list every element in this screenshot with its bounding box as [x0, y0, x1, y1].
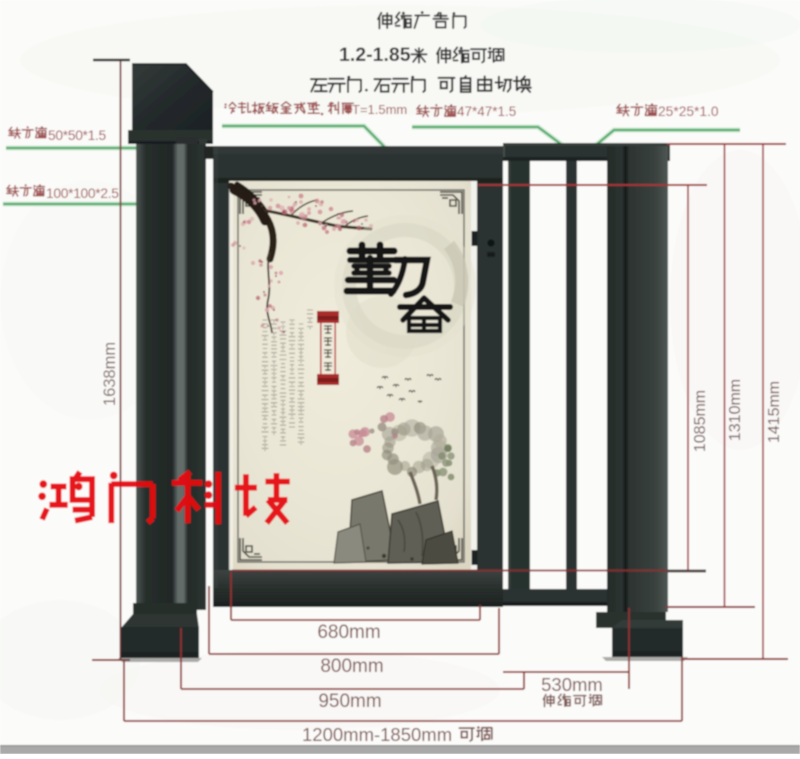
svg-text:1415mm: 1415mm — [766, 381, 783, 443]
svg-text:800mm: 800mm — [320, 656, 383, 677]
svg-text:1.2-1.85: 1.2-1.85 — [339, 44, 411, 66]
svg-text:1200mm-1850mm: 1200mm-1850mm — [302, 724, 452, 745]
svg-text:47*47*1.5: 47*47*1.5 — [457, 104, 516, 119]
svg-text:680mm: 680mm — [317, 622, 380, 643]
svg-text:1310mm: 1310mm — [727, 379, 744, 441]
svg-text:25*25*1.0: 25*25*1.0 — [658, 104, 719, 119]
svg-text:1638mm: 1638mm — [101, 342, 119, 406]
svg-text:530mm: 530mm — [541, 674, 603, 695]
svg-text:50*50*1.5: 50*50*1.5 — [48, 128, 107, 143]
svg-text:100*100*2.5: 100*100*2.5 — [46, 186, 119, 201]
svg-text:T=1.5mm: T=1.5mm — [352, 102, 407, 117]
svg-text:950mm: 950mm — [318, 691, 381, 712]
svg-text:1085mm: 1085mm — [692, 390, 709, 452]
